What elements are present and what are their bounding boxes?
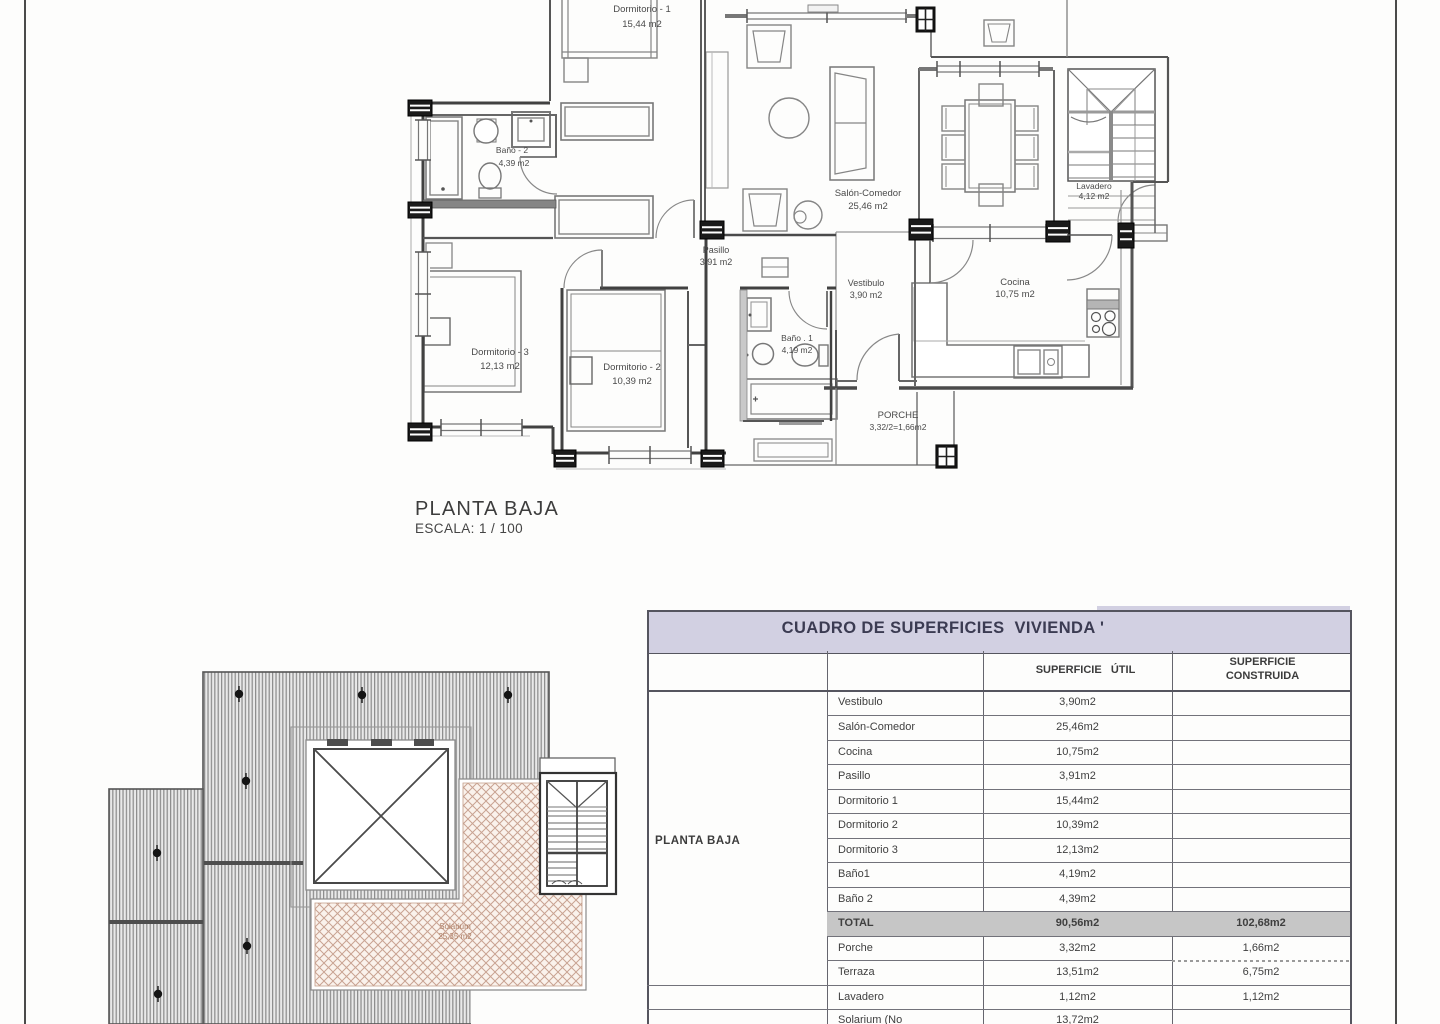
svg-text:Salón-Comedor: Salón-Comedor — [835, 188, 902, 199]
svg-text:Dormitorio - 3: Dormitorio - 3 — [471, 347, 529, 358]
svg-text:Vestibulo: Vestibulo — [848, 278, 885, 288]
svg-text:4,19 m2: 4,19 m2 — [782, 345, 813, 355]
svg-text:Baño - 2: Baño - 2 — [496, 145, 528, 155]
svg-text:Dormitorio - 2: Dormitorio - 2 — [603, 362, 661, 373]
svg-text:Cocina: Cocina — [1000, 277, 1030, 288]
svg-text:10,39 m2: 10,39 m2 — [612, 376, 652, 387]
svg-text:12,13 m2: 12,13 m2 — [480, 361, 520, 372]
svg-text:15,44 m2: 15,44 m2 — [622, 19, 662, 30]
svg-text:25,46 m2: 25,46 m2 — [848, 201, 888, 212]
svg-text:Solarium: Solarium — [439, 922, 471, 931]
svg-text:Baño . 1: Baño . 1 — [781, 333, 813, 343]
svg-text:3,90 m2: 3,90 m2 — [850, 290, 883, 300]
svg-text:Pasillo: Pasillo — [703, 245, 730, 255]
svg-text:Lavadero: Lavadero — [1076, 181, 1112, 191]
svg-text:10,75 m2: 10,75 m2 — [995, 289, 1035, 300]
svg-text:25,35 m2: 25,35 m2 — [438, 932, 472, 941]
svg-text:4,39 m2: 4,39 m2 — [499, 158, 530, 168]
svg-text:3,32/2=1,66m2: 3,32/2=1,66m2 — [870, 422, 927, 432]
svg-text:4,12 m2: 4,12 m2 — [1079, 191, 1110, 201]
svg-text:3,91 m2: 3,91 m2 — [700, 257, 733, 267]
svg-text:PORCHE: PORCHE — [878, 410, 919, 421]
svg-text:Dormitorio - 1: Dormitorio - 1 — [613, 4, 671, 15]
